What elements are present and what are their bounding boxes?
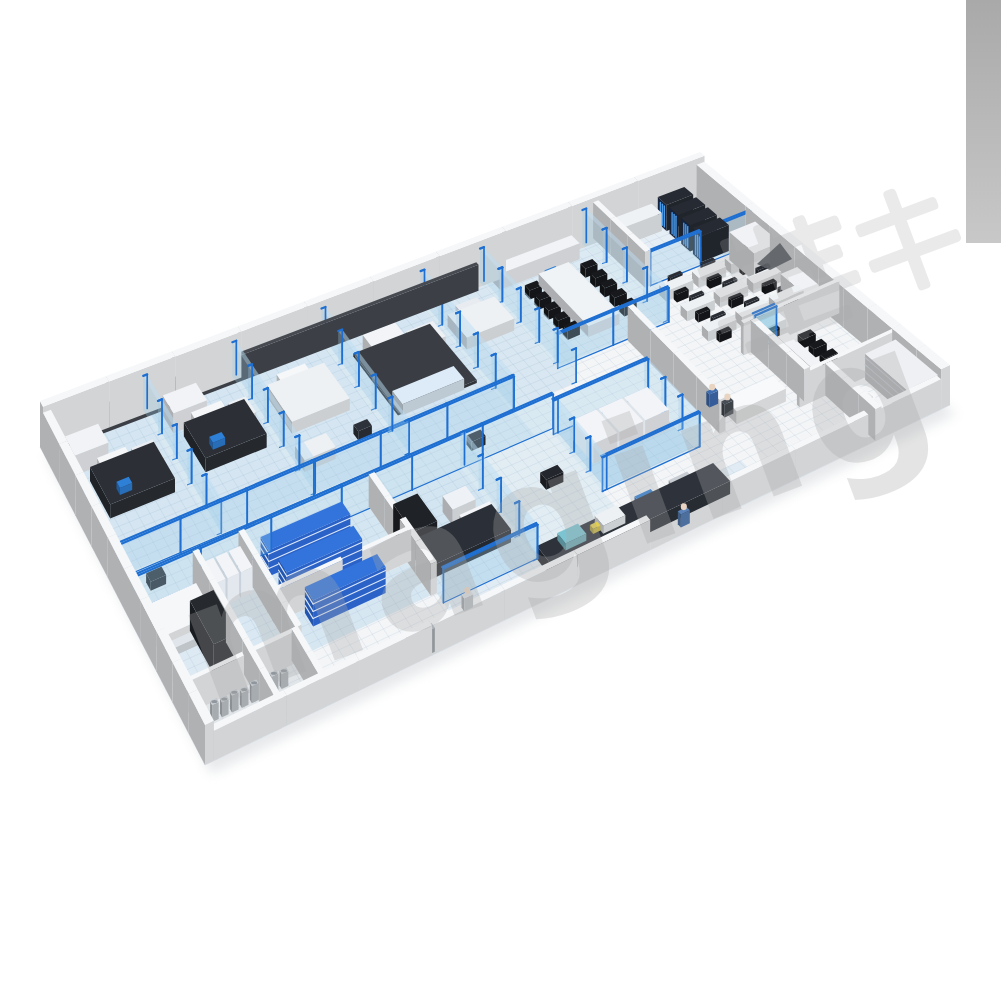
gray-artifact-bar xyxy=(966,0,1001,243)
floorplan-3d-render: maging xyxy=(0,0,1001,1001)
watermark-glyph xyxy=(847,172,974,305)
render-canvas: maging xyxy=(0,0,1001,1001)
